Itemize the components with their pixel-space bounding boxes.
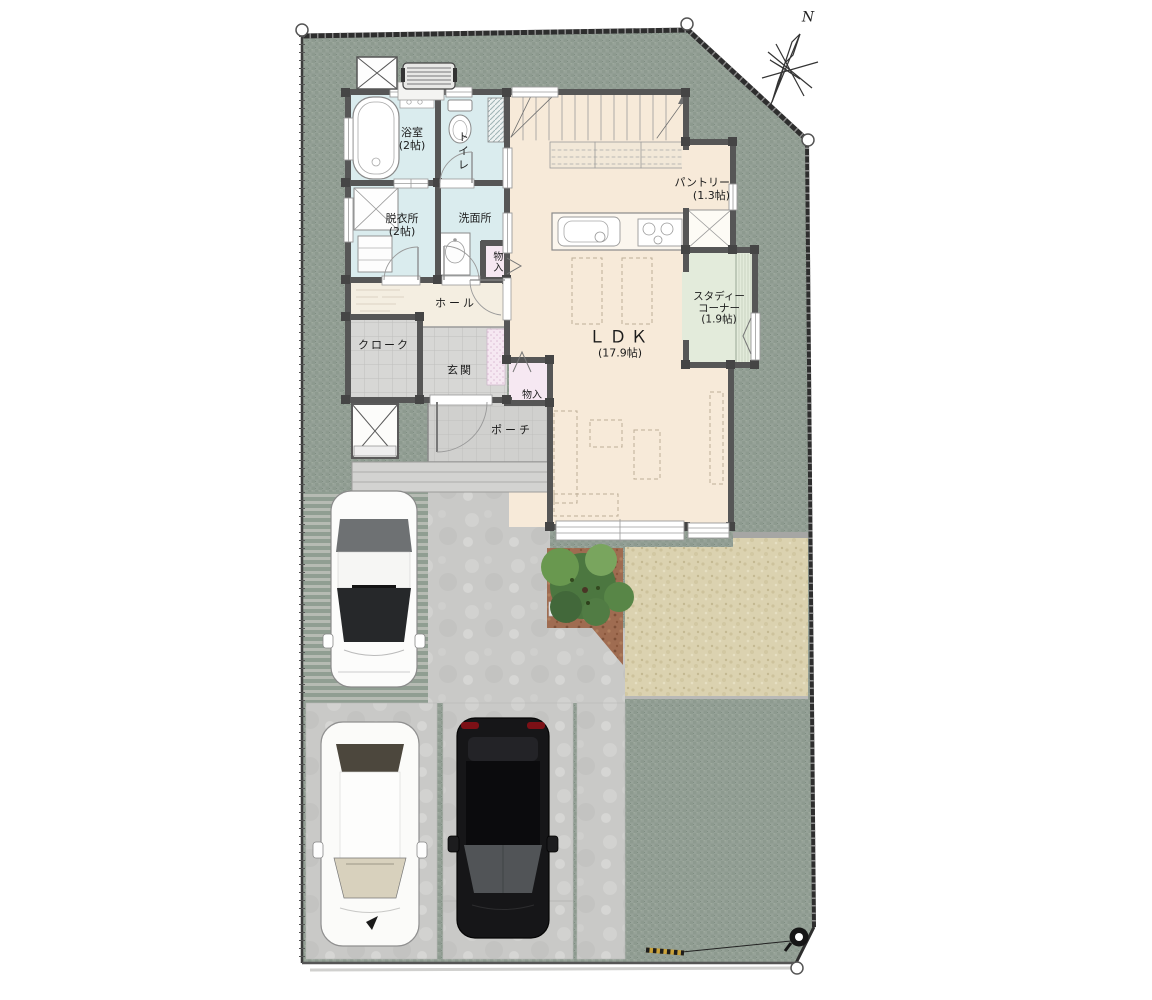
compass-icon — [762, 34, 818, 104]
kitchen-counter-icon — [552, 213, 686, 250]
entrance-steps — [352, 462, 548, 492]
tail-light — [527, 722, 545, 729]
car-white-lower — [313, 722, 427, 946]
parking-pad-right — [577, 703, 625, 959]
understair-closet — [550, 142, 686, 168]
equipment-pad-icon — [357, 57, 397, 89]
side-mirror — [323, 634, 333, 648]
side-mirror — [415, 634, 425, 648]
window — [688, 523, 729, 538]
toilet-icon — [448, 100, 472, 143]
floor-plan-page: 浴室 (2帖) トイレ 脱衣所 (2帖) 洗面所 物入 ホール クローク 玄関 … — [0, 0, 1152, 1000]
car-black-suv — [448, 718, 558, 938]
pantry-closet-icon — [688, 210, 731, 248]
bathtub-icon — [353, 97, 399, 179]
outdoor-storage-box-icon — [352, 404, 398, 458]
car-white-upper — [323, 491, 425, 687]
side-mirror — [313, 842, 323, 858]
site-plan-canvas — [0, 0, 1152, 1000]
hot-water-unit-icon — [401, 63, 457, 89]
side-mirror — [448, 836, 459, 852]
tail-light — [461, 722, 479, 729]
side-mirror — [417, 842, 427, 858]
toilet-cabinet — [488, 98, 504, 142]
side-mirror — [547, 836, 558, 852]
gravel-terrace — [625, 538, 808, 698]
